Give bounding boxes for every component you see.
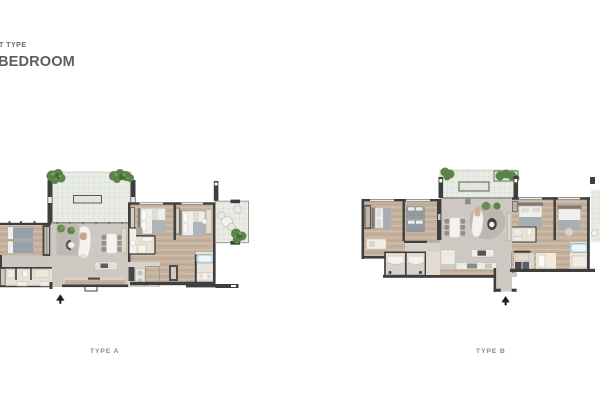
svg-text:BEDROOM: BEDROOM: [0, 54, 75, 70]
svg-text:TYPE A: TYPE A: [90, 348, 119, 355]
svg-text:TYPE B: TYPE B: [476, 348, 506, 355]
svg-text:T TYPE: T TYPE: [0, 40, 27, 49]
